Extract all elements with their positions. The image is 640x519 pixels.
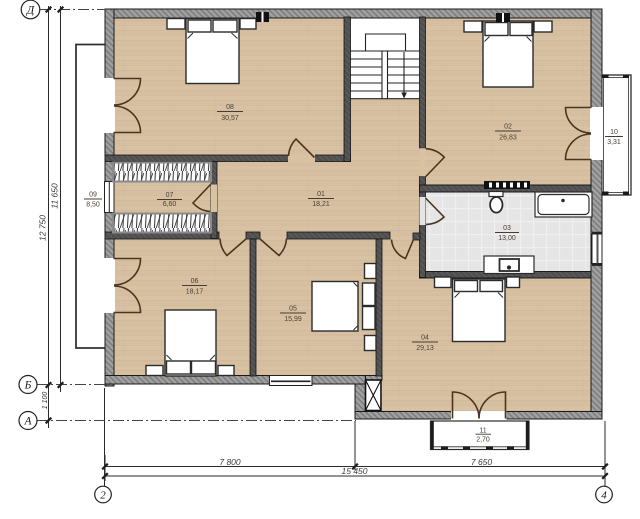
svg-text:07: 07 [166, 192, 174, 199]
svg-text:30,57: 30,57 [221, 115, 239, 122]
svg-text:29,13: 29,13 [416, 345, 434, 352]
svg-text:15 450: 15 450 [342, 466, 368, 476]
svg-text:13,00: 13,00 [498, 235, 516, 242]
svg-text:06: 06 [191, 278, 199, 285]
svg-text:18,21: 18,21 [312, 201, 330, 208]
svg-text:2: 2 [100, 490, 106, 502]
svg-text:26,83: 26,83 [499, 135, 517, 142]
svg-text:11: 11 [479, 428, 486, 435]
svg-text:04: 04 [421, 335, 429, 342]
svg-text:01: 01 [317, 191, 325, 198]
svg-text:03: 03 [503, 225, 511, 232]
svg-text:4: 4 [601, 490, 607, 502]
svg-text:8,50: 8,50 [86, 202, 100, 209]
svg-text:02: 02 [504, 124, 512, 131]
svg-text:Д: Д [26, 5, 35, 17]
svg-text:Б: Б [24, 380, 32, 392]
svg-text:3,31: 3,31 [607, 139, 621, 146]
svg-text:15,99: 15,99 [284, 316, 302, 323]
svg-text:1 100: 1 100 [42, 392, 49, 410]
svg-text:2,70: 2,70 [476, 437, 490, 444]
svg-text:05: 05 [289, 306, 297, 313]
svg-text:11 650: 11 650 [50, 183, 60, 209]
svg-text:18,17: 18,17 [186, 289, 204, 296]
svg-text:6,60: 6,60 [163, 201, 177, 208]
svg-text:08: 08 [226, 104, 234, 111]
svg-text:09: 09 [89, 192, 97, 199]
svg-text:7 800: 7 800 [219, 457, 241, 467]
svg-text:10: 10 [610, 129, 618, 136]
svg-text:7 650: 7 650 [471, 457, 493, 467]
svg-text:А: А [23, 416, 32, 428]
svg-text:12 750: 12 750 [38, 215, 48, 241]
